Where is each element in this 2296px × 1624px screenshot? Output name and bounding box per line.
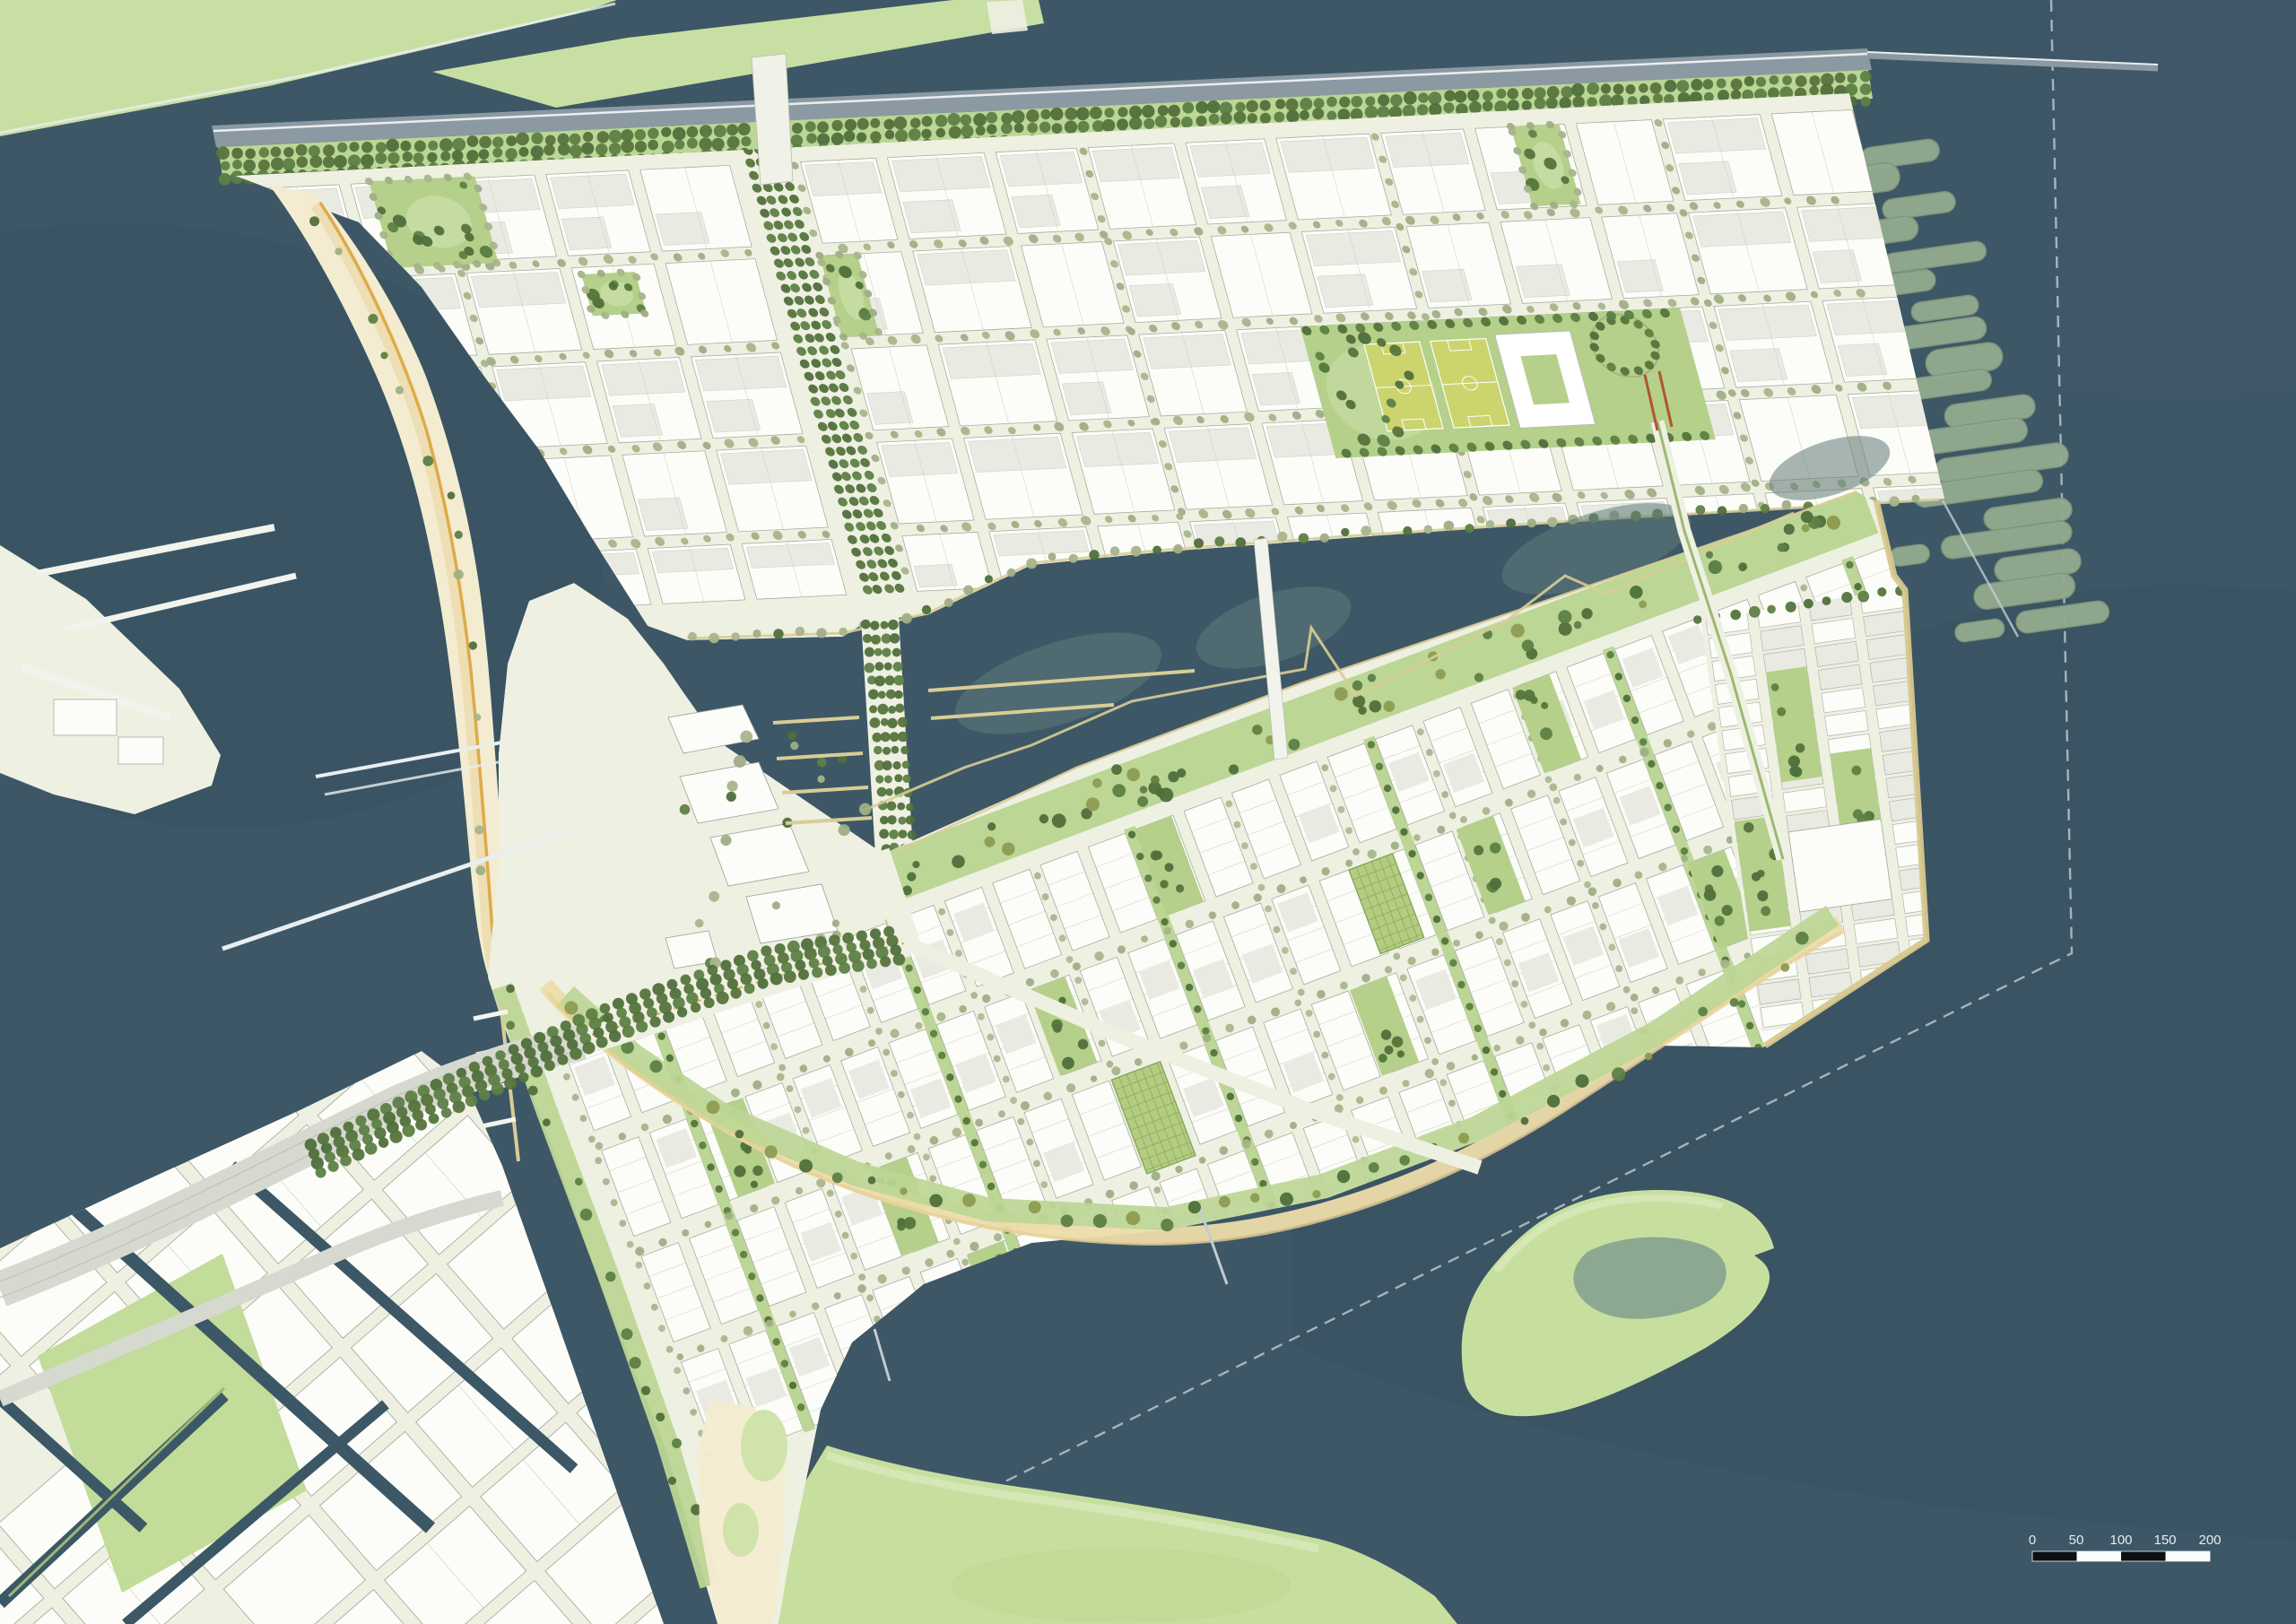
scale-label-50: 50 xyxy=(2069,1533,2084,1548)
scale-label-0: 0 xyxy=(2029,1533,2036,1548)
water-shade-top-right xyxy=(2054,0,2296,395)
scale-segment xyxy=(2121,1551,2166,1561)
scale-label-150: 150 xyxy=(2153,1533,2176,1548)
scale-label-100: 100 xyxy=(2109,1533,2132,1548)
shore-center-road xyxy=(987,0,1028,34)
cove-green-patch xyxy=(741,1410,787,1481)
scale-segment xyxy=(2166,1551,2211,1561)
scale-segment xyxy=(2032,1551,2077,1561)
scale-segment xyxy=(2077,1551,2122,1561)
dock-shed xyxy=(54,699,117,735)
headland-meadow xyxy=(951,1548,1291,1623)
dock-shed xyxy=(118,737,163,764)
scale-label-200: 200 xyxy=(2198,1533,2221,1548)
cove-green-patch xyxy=(723,1503,759,1557)
masterplan-map: 0 50 100 150 200 xyxy=(0,0,2296,1624)
